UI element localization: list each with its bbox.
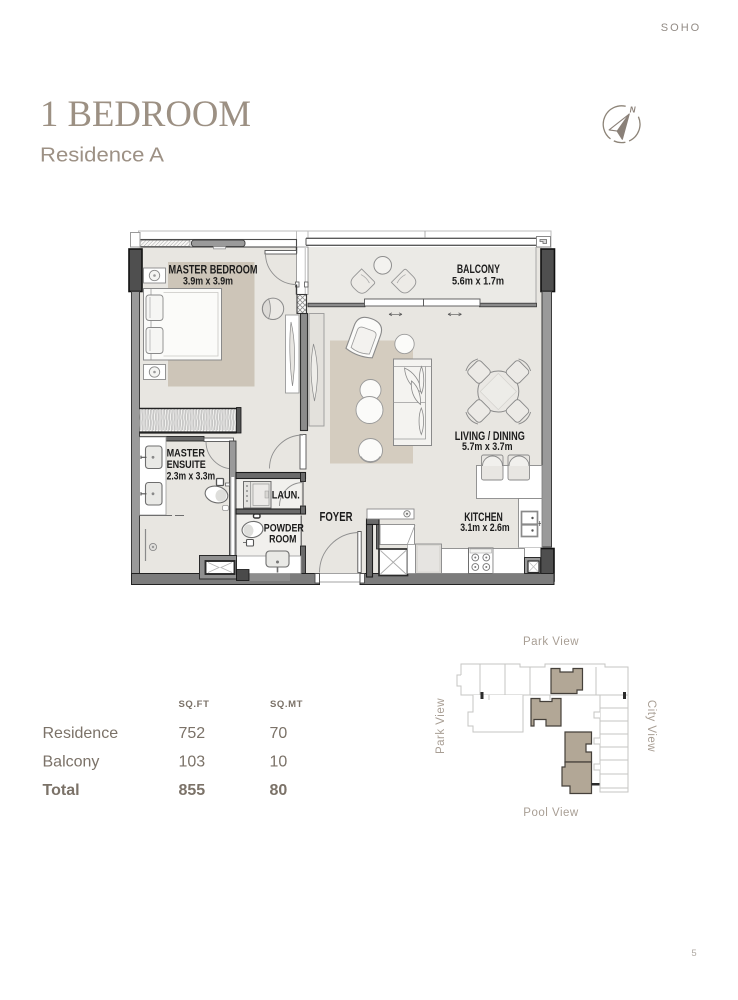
svg-text:SQ.MT: SQ.MT (270, 699, 303, 710)
svg-text:City View: City View (645, 700, 657, 752)
svg-text:MASTER: MASTER (167, 448, 205, 460)
svg-text:80: 80 (270, 782, 288, 799)
svg-text:SQ.FT: SQ.FT (179, 699, 210, 710)
svg-text:70: 70 (270, 725, 288, 742)
svg-text:10: 10 (270, 754, 288, 771)
svg-text:Total: Total (43, 782, 80, 799)
svg-text:Residence A: Residence A (40, 145, 165, 167)
svg-text:5.7m x 3.7m: 5.7m x 3.7m (462, 441, 513, 453)
svg-text:855: 855 (179, 782, 206, 799)
svg-text:ROOM: ROOM (269, 534, 296, 546)
svg-text:2.3m x 3.3m: 2.3m x 3.3m (167, 471, 216, 483)
svg-text:103: 103 (179, 754, 206, 771)
svg-text:FOYER: FOYER (320, 510, 353, 524)
svg-text:Residence: Residence (43, 725, 119, 742)
svg-text:Pool View: Pool View (523, 807, 579, 819)
svg-text:ENSUITE: ENSUITE (167, 459, 206, 471)
svg-text:5: 5 (691, 948, 696, 959)
svg-text:Park View: Park View (523, 636, 579, 648)
svg-text:SOHO: SOHO (661, 22, 701, 34)
svg-text:1 BEDROOM: 1 BEDROOM (40, 94, 251, 135)
svg-text:Park View: Park View (435, 698, 447, 754)
svg-text:752: 752 (179, 725, 206, 742)
svg-text:3.9m x 3.9m: 3.9m x 3.9m (183, 276, 233, 288)
svg-text:Balcony: Balcony (43, 754, 100, 771)
svg-text:5.6m x 1.7m: 5.6m x 1.7m (452, 275, 504, 287)
svg-text:BALCONY: BALCONY (457, 262, 500, 276)
svg-text:MASTER BEDROOM: MASTER BEDROOM (169, 263, 258, 277)
svg-text:3.1m x 2.6m: 3.1m x 2.6m (460, 522, 510, 534)
svg-text:LAUN.: LAUN. (272, 490, 300, 502)
